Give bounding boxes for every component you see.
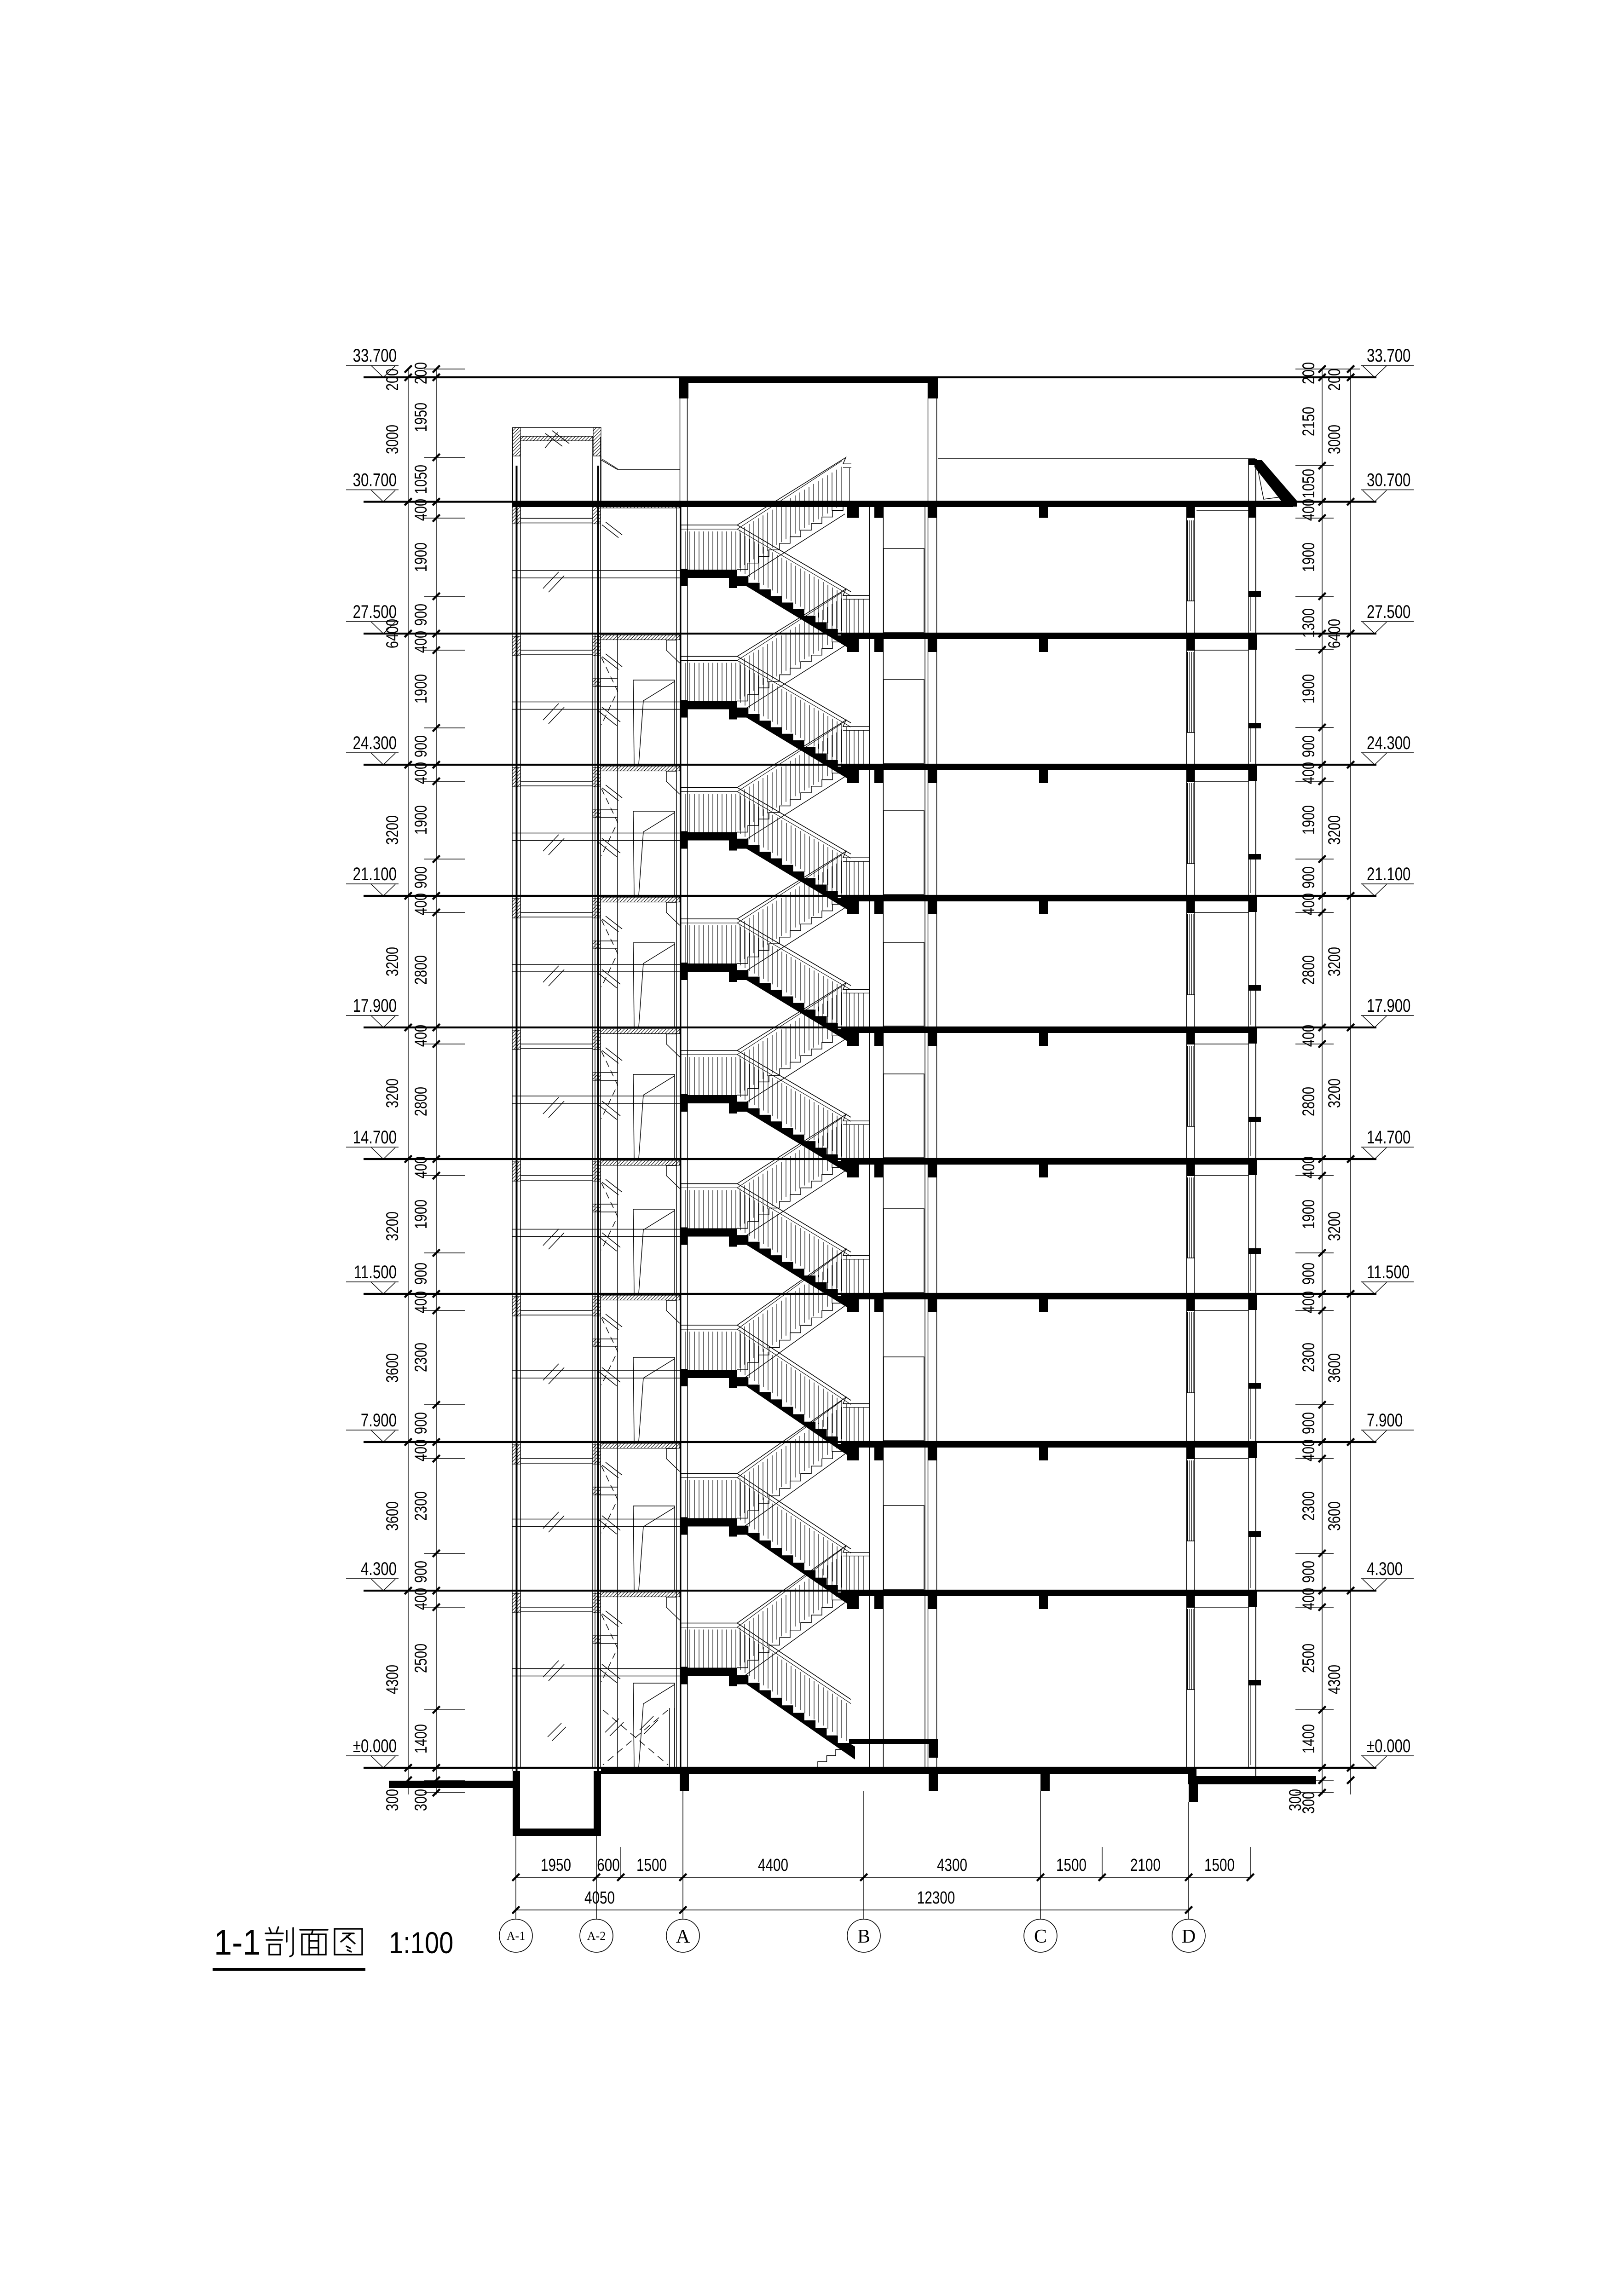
svg-text:1900: 1900	[1300, 674, 1318, 704]
svg-text:400: 400	[1300, 1156, 1318, 1178]
svg-text:3200: 3200	[383, 1211, 402, 1241]
svg-text:3200: 3200	[1325, 815, 1344, 845]
svg-text:1500: 1500	[1204, 1856, 1235, 1875]
svg-text:1900: 1900	[412, 805, 431, 835]
svg-text:27.500: 27.500	[1367, 601, 1410, 622]
svg-text:1:100: 1:100	[389, 1926, 453, 1960]
svg-text:400: 400	[412, 1156, 431, 1178]
svg-text:1950: 1950	[541, 1856, 571, 1875]
svg-text:200: 200	[1300, 362, 1318, 384]
svg-text:27.500: 27.500	[353, 601, 397, 622]
svg-text:400: 400	[412, 762, 431, 784]
svg-text:2500: 2500	[1300, 1644, 1318, 1673]
svg-text:3600: 3600	[1325, 1353, 1344, 1383]
svg-text:4300: 4300	[1325, 1665, 1344, 1694]
svg-text:400: 400	[412, 1025, 431, 1047]
svg-text:300: 300	[412, 1789, 431, 1811]
svg-text:1-1: 1-1	[214, 1922, 260, 1962]
svg-text:14.700: 14.700	[1367, 1127, 1410, 1148]
svg-text:3600: 3600	[383, 1353, 402, 1383]
svg-text:1900: 1900	[412, 674, 431, 704]
svg-text:900: 900	[412, 866, 431, 888]
svg-text:21.100: 21.100	[1367, 864, 1410, 884]
svg-text:3200: 3200	[1325, 1079, 1344, 1108]
svg-text:2100: 2100	[1130, 1856, 1161, 1875]
svg-text:14.700: 14.700	[353, 1127, 397, 1148]
svg-text:300: 300	[383, 1789, 402, 1811]
svg-text:4.300: 4.300	[1367, 1558, 1403, 1579]
svg-text:3200: 3200	[383, 815, 402, 845]
svg-text:3000: 3000	[1325, 425, 1344, 454]
svg-text:33.700: 33.700	[1367, 345, 1410, 366]
svg-text:C: C	[1034, 1926, 1047, 1947]
svg-text:3600: 3600	[383, 1501, 402, 1531]
svg-text:900: 900	[412, 1263, 431, 1285]
svg-text:900: 900	[1300, 1412, 1318, 1434]
svg-text:30.700: 30.700	[1367, 470, 1410, 490]
svg-text:400: 400	[412, 1291, 431, 1313]
svg-text:4300: 4300	[383, 1665, 402, 1694]
svg-text:3200: 3200	[383, 1079, 402, 1108]
svg-text:900: 900	[1300, 1263, 1318, 1285]
svg-text:1900: 1900	[412, 1200, 431, 1229]
svg-text:2500: 2500	[412, 1644, 431, 1673]
svg-text:4050: 4050	[584, 1888, 615, 1908]
svg-text:11.500: 11.500	[354, 1262, 397, 1282]
svg-text:400: 400	[1300, 1025, 1318, 1047]
svg-text:1900: 1900	[412, 542, 431, 572]
svg-text:2300: 2300	[412, 1343, 431, 1372]
svg-text:2800: 2800	[1300, 955, 1318, 985]
svg-text:2800: 2800	[1300, 1087, 1318, 1116]
svg-text:17.900: 17.900	[353, 995, 397, 1016]
svg-text:24.300: 24.300	[353, 733, 397, 753]
svg-text:2300: 2300	[1300, 1343, 1318, 1372]
svg-text:400: 400	[412, 1439, 431, 1461]
svg-text:900: 900	[412, 735, 431, 757]
svg-text:2800: 2800	[412, 1087, 431, 1116]
svg-text:6400: 6400	[383, 619, 402, 648]
svg-text:A: A	[676, 1926, 690, 1947]
svg-text:A-2: A-2	[587, 1929, 606, 1943]
svg-text:1400: 1400	[1300, 1724, 1318, 1754]
svg-text:7.900: 7.900	[361, 1410, 397, 1431]
svg-text:200: 200	[1325, 369, 1344, 391]
svg-text:900: 900	[412, 1412, 431, 1434]
svg-text:3200: 3200	[1325, 947, 1344, 976]
svg-text:400: 400	[412, 1588, 431, 1610]
svg-text:1300: 1300	[1300, 608, 1318, 638]
svg-text:300: 300	[1286, 1789, 1305, 1811]
svg-text:30.700: 30.700	[353, 470, 397, 490]
svg-text:4400: 4400	[758, 1856, 788, 1875]
svg-text:2800: 2800	[412, 955, 431, 985]
svg-text:7.900: 7.900	[1367, 1410, 1403, 1431]
svg-text:900: 900	[412, 604, 431, 626]
svg-text:4.300: 4.300	[361, 1558, 397, 1579]
svg-text:1400: 1400	[412, 1724, 431, 1754]
svg-text:900: 900	[1300, 866, 1318, 888]
svg-text:400: 400	[1300, 1291, 1318, 1313]
svg-text:2150: 2150	[1300, 407, 1318, 436]
svg-text:3200: 3200	[383, 947, 402, 976]
svg-text:11.500: 11.500	[1367, 1262, 1410, 1282]
svg-text:2300: 2300	[412, 1491, 431, 1521]
svg-text:1050: 1050	[1300, 469, 1318, 498]
svg-text:400: 400	[412, 893, 431, 915]
svg-text:24.300: 24.300	[1367, 733, 1410, 753]
svg-text:600: 600	[597, 1856, 619, 1875]
svg-text:1050: 1050	[412, 465, 431, 494]
svg-text:400: 400	[1300, 1588, 1318, 1610]
svg-text:±0.000: ±0.000	[1367, 1736, 1410, 1756]
svg-text:400: 400	[412, 499, 431, 521]
svg-text:12300: 12300	[917, 1888, 955, 1908]
svg-text:3200: 3200	[1325, 1211, 1344, 1241]
svg-text:4300: 4300	[937, 1856, 967, 1875]
svg-text:D: D	[1182, 1926, 1196, 1947]
svg-text:3600: 3600	[1325, 1501, 1344, 1531]
svg-text:400: 400	[1300, 762, 1318, 784]
svg-text:400: 400	[1300, 893, 1318, 915]
svg-text:900: 900	[1300, 735, 1318, 757]
svg-text:400: 400	[412, 631, 431, 653]
svg-text:1900: 1900	[1300, 542, 1318, 572]
svg-text:6400: 6400	[1325, 619, 1344, 648]
svg-text:B: B	[857, 1926, 870, 1947]
svg-text:900: 900	[412, 1561, 431, 1583]
svg-text:21.100: 21.100	[353, 864, 397, 884]
svg-text:400: 400	[1300, 499, 1318, 521]
svg-text:A-1: A-1	[507, 1929, 525, 1943]
svg-text:2300: 2300	[1300, 1491, 1318, 1521]
svg-text:1900: 1900	[1300, 1200, 1318, 1229]
svg-text:1500: 1500	[1056, 1856, 1087, 1875]
svg-text:1950: 1950	[412, 403, 431, 432]
svg-text:1900: 1900	[1300, 805, 1318, 835]
svg-text:400: 400	[1300, 1439, 1318, 1461]
svg-text:1500: 1500	[636, 1856, 667, 1875]
svg-text:33.700: 33.700	[353, 345, 397, 366]
svg-text:900: 900	[1300, 1561, 1318, 1583]
svg-text:200: 200	[383, 369, 402, 391]
svg-text:±0.000: ±0.000	[353, 1736, 397, 1756]
svg-text:200: 200	[412, 362, 431, 384]
svg-text:17.900: 17.900	[1367, 995, 1410, 1016]
svg-text:3000: 3000	[383, 425, 402, 454]
